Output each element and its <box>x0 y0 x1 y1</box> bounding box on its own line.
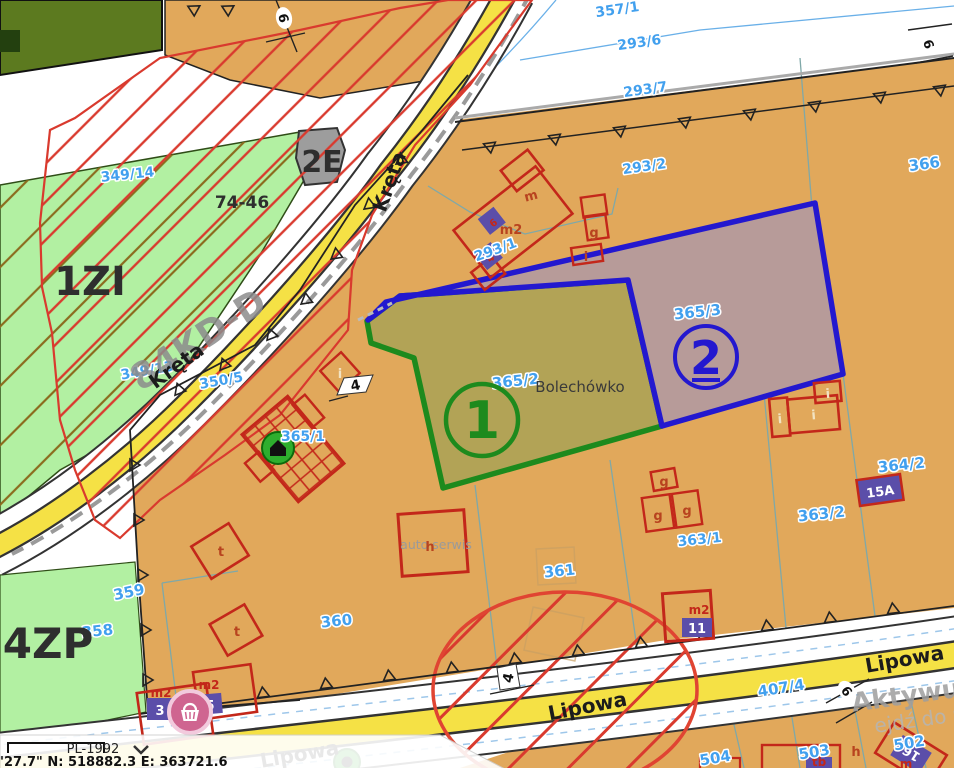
address-3: 3 <box>155 704 164 719</box>
svg-text:2: 2 <box>690 331 722 385</box>
place-label-bolechowko: Bolechówko <box>535 378 624 396</box>
zone-label-74-46: 74-46 <box>215 193 269 213</box>
status-bar: PL-1992 '27.7" N: 518882.3 E: 363721.6 <box>0 735 505 768</box>
parcel-label-360: 360 <box>320 610 353 631</box>
cadastral-map: 6 4 m m2 g i i auto serwis h <box>0 0 954 768</box>
building-label-i2: i <box>338 367 342 382</box>
parcel-label-361: 361 <box>543 560 576 581</box>
building-label-h: h <box>425 540 434 555</box>
poi-shop-marker[interactable] <box>169 691 211 733</box>
svg-text:m2: m2 <box>689 603 710 617</box>
parcel-label-365-1: 365/1 <box>281 429 325 445</box>
address-15a-plate: 15A <box>856 474 903 506</box>
zone-label-4zp: 4ZP <box>3 619 93 668</box>
zone-label-1zi: 1ZI <box>54 259 126 305</box>
building-label-t2: t <box>234 625 240 640</box>
svg-text:m2: m2 <box>199 678 220 692</box>
red-hatch-circle <box>433 592 697 768</box>
zone-label-2e: 2E <box>301 145 342 180</box>
svg-text:m2: m2 <box>151 686 172 700</box>
auto-serwis-label: auto serwis <box>400 537 472 552</box>
building-label-m3: m <box>900 757 913 768</box>
building-label-t1: t <box>218 545 224 560</box>
building-label-g4: g <box>682 504 691 519</box>
building-label-g2: g <box>659 475 668 490</box>
building-label-g: g <box>589 226 598 241</box>
svg-text:1: 1 <box>464 391 500 451</box>
building-label-h2: h <box>851 745 860 760</box>
building-label-g3: g <box>653 509 662 524</box>
coordinates-readout: '27.7" N: 518882.3 E: 363721.6 <box>0 755 228 768</box>
parcel-label-504: 504 <box>698 747 732 768</box>
dark-green-structure <box>0 30 20 52</box>
building-label-i: i <box>584 250 588 265</box>
address-11: 11 <box>688 622 706 637</box>
map-canvas[interactable]: 6 4 m m2 g i i auto serwis h <box>0 0 954 768</box>
